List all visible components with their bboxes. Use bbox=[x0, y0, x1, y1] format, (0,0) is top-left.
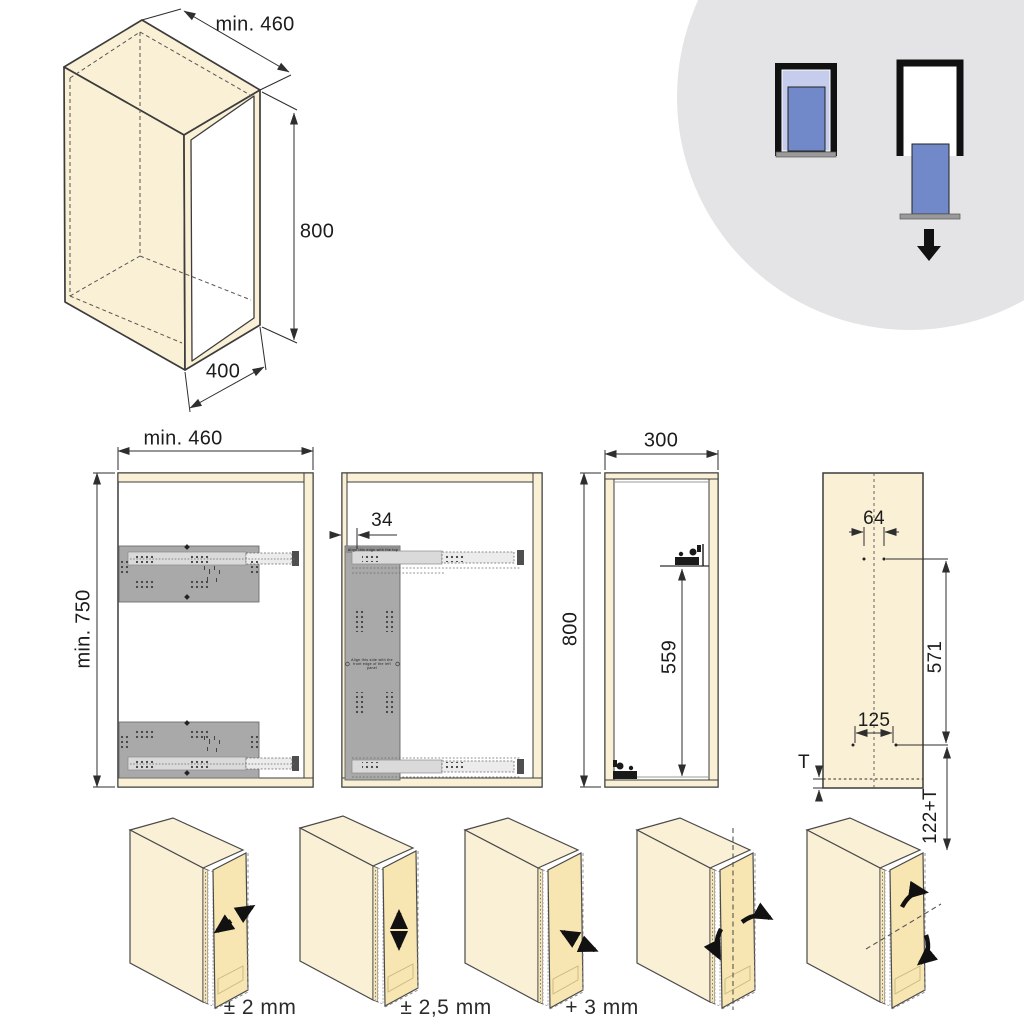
adjustment-label-lateral: ± 2 mm bbox=[224, 996, 297, 1020]
template-note-center: Align this side with the front edge of t… bbox=[349, 658, 395, 670]
template-alignment-view bbox=[330, 473, 542, 787]
template-note-top: Align this edge with the top bbox=[348, 548, 398, 552]
dim-template-offset: 34 bbox=[371, 510, 393, 532]
dim-iso-height: 800 bbox=[300, 221, 334, 244]
adjustment-cabinet-depth bbox=[465, 818, 595, 1009]
drawer-inside-cabinet-icon bbox=[775, 63, 837, 157]
isometric-cabinet-drawing bbox=[64, 9, 297, 412]
dim-door-top-holes: 64 bbox=[863, 508, 885, 530]
diagram-page: min. 460 800 400 min. 460 min. 750 34 Al… bbox=[0, 0, 1024, 1024]
dim-bracket-height: 559 bbox=[659, 640, 682, 674]
adjustment-label-vertical: ± 2,5 mm bbox=[400, 996, 491, 1020]
adjustment-cabinet-tilt-vertical-axis bbox=[637, 818, 770, 1010]
dim-iso-width: min. 460 bbox=[215, 14, 294, 37]
front-view-300 bbox=[580, 450, 718, 787]
dim-iso-depth: 400 bbox=[206, 361, 240, 384]
dim-side-width: min. 460 bbox=[143, 428, 222, 451]
adjustment-cabinet-tilt-horizontal-axis bbox=[807, 818, 941, 1009]
dim-door-thickness: T bbox=[798, 752, 810, 774]
dim-door-bottom-holes: 125 bbox=[858, 710, 891, 732]
dim-door-overhang: 122+T bbox=[920, 788, 942, 844]
dim-side-height: min. 750 bbox=[73, 589, 96, 668]
adjustment-cabinet-vertical bbox=[300, 816, 418, 1007]
adjustment-label-depth: + 3 mm bbox=[565, 996, 639, 1020]
side-panel-view bbox=[93, 447, 313, 787]
inset-circle bbox=[677, 0, 1024, 330]
dim-door-hole-span: 571 bbox=[925, 641, 947, 674]
adjustment-cabinet-lateral bbox=[130, 818, 252, 1009]
dim-front-width: 300 bbox=[644, 430, 678, 453]
dim-front-height: 800 bbox=[560, 612, 583, 646]
